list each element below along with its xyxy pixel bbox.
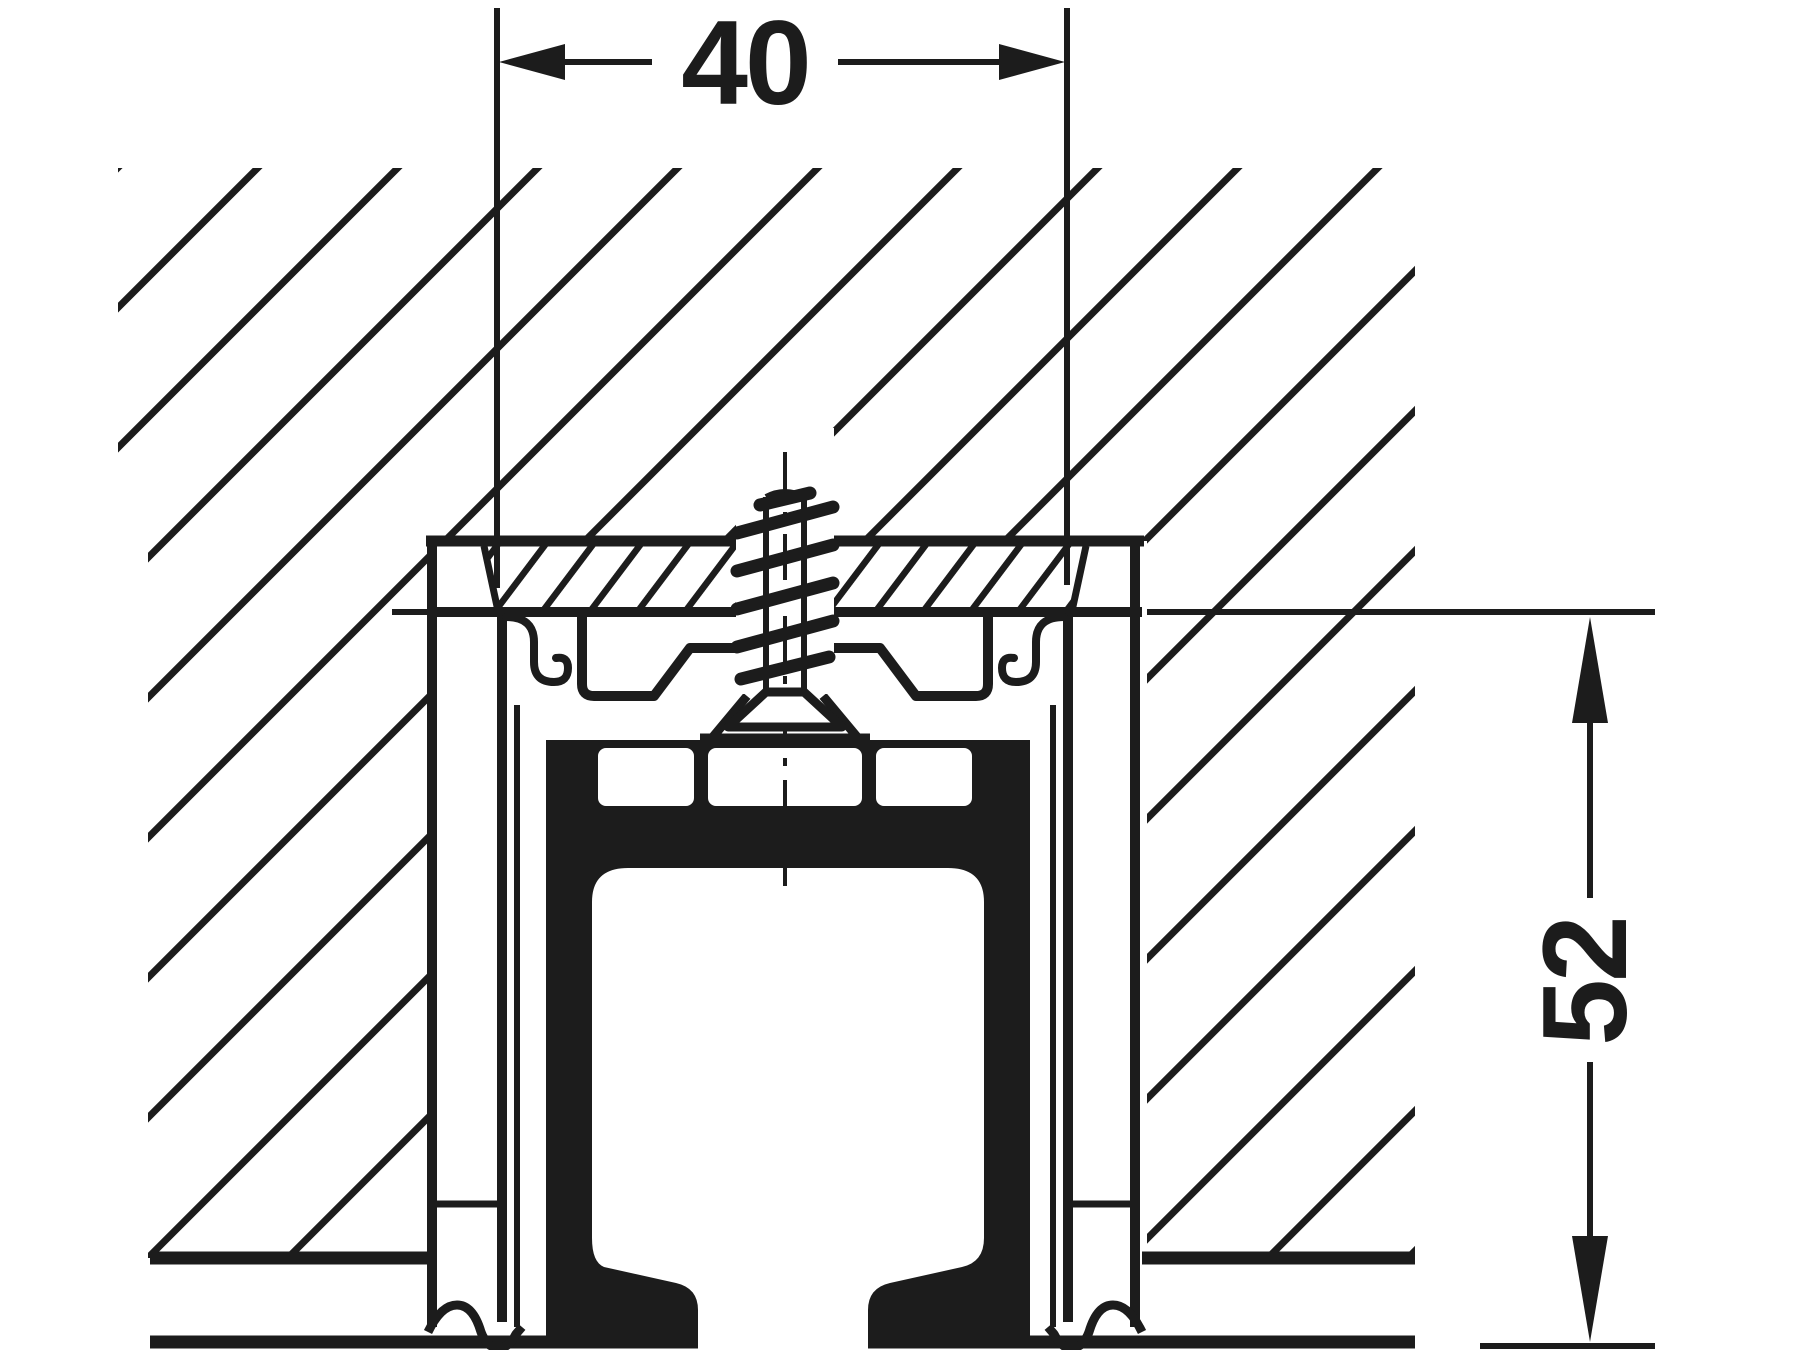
clip-hook-left [506,617,568,682]
track-profile-cross-section: 40 52 [0,0,1800,1350]
dimension-52-label: 52 [1518,918,1652,1045]
clip-hook-right [1002,617,1064,682]
arrow-down-icon [1572,1236,1608,1342]
technical-drawing-page: 40 52 [0,0,1800,1350]
dimension-40-label: 40 [681,0,808,130]
arrow-up-icon [1572,617,1608,723]
arrow-right-icon [999,44,1065,80]
inner-running-track [546,740,1030,1345]
wall-bottom-edge-lines [150,1258,1415,1342]
arrow-left-icon [499,44,565,80]
